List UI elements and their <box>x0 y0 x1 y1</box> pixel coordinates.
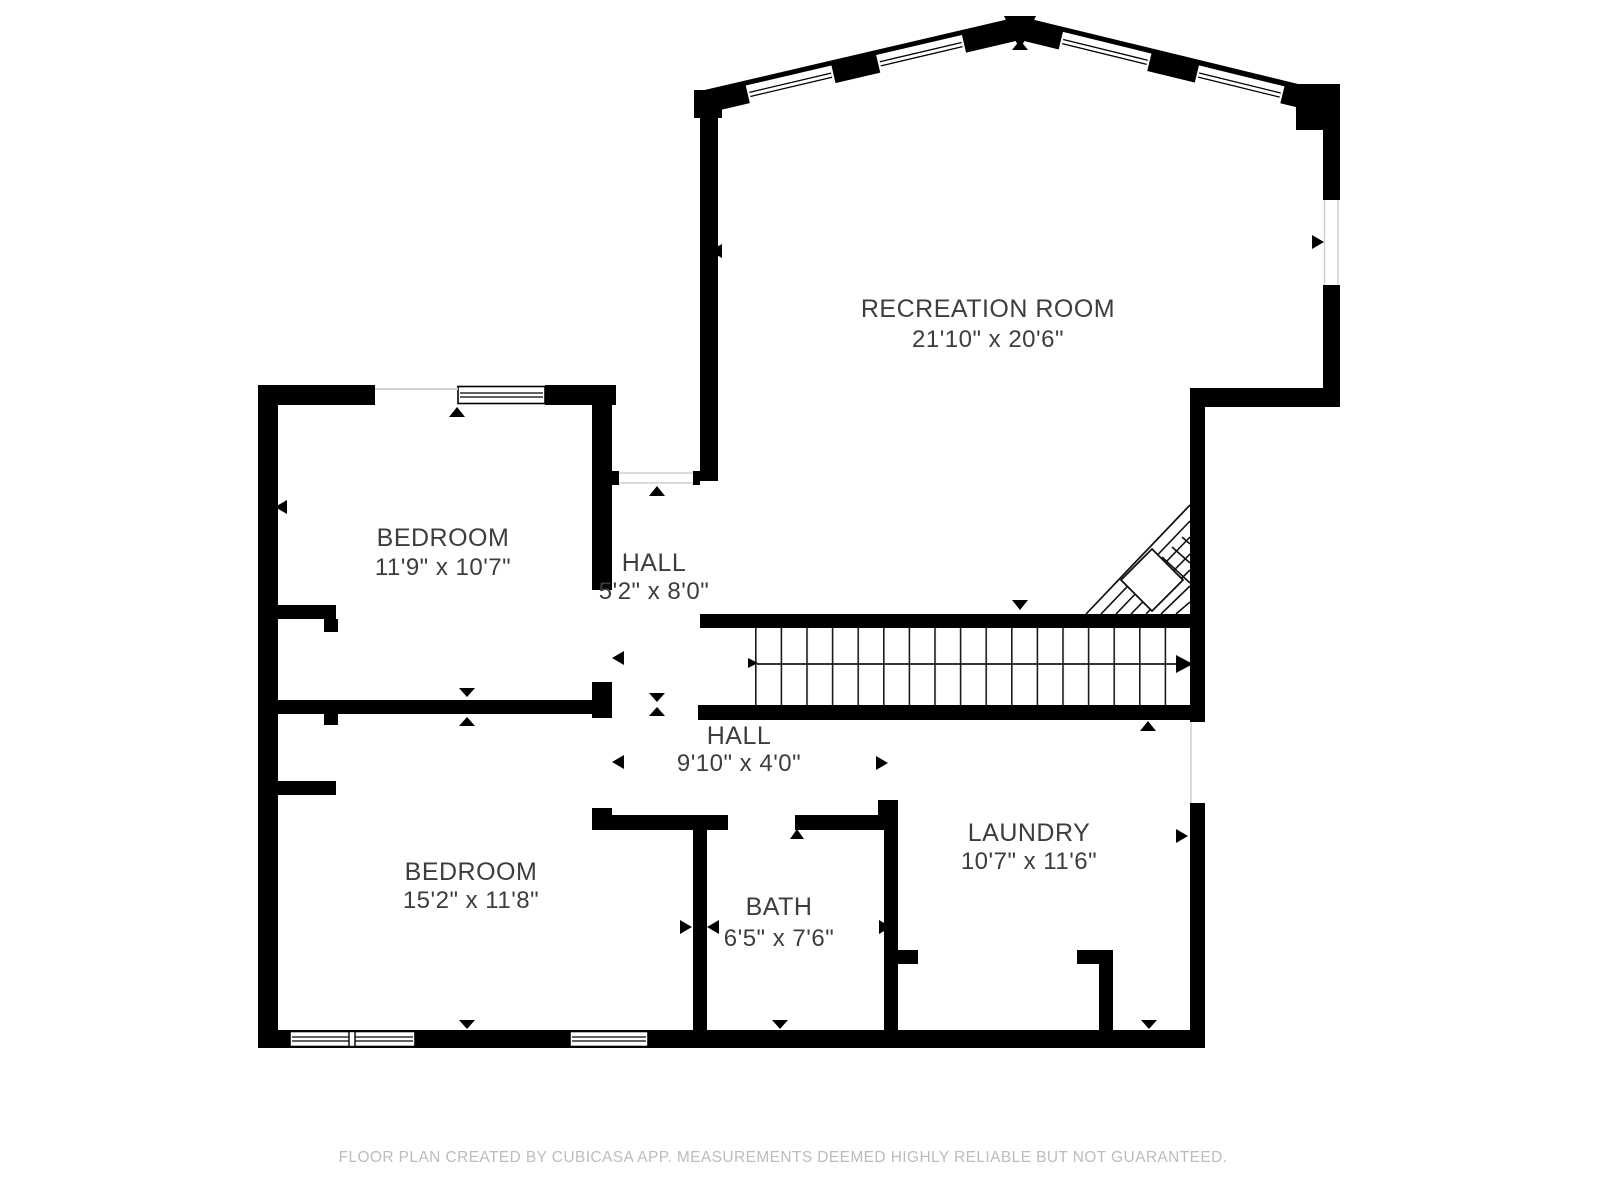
marker-bedroom1-door <box>612 651 624 665</box>
window-bedroom2-bottom-double <box>290 1032 415 1047</box>
room-dims-bath: 6'5" x 7'6" <box>724 925 834 952</box>
marker-laundry-top-wall <box>1140 721 1156 731</box>
room-dims-laundry: 10'7" x 11'6" <box>961 848 1097 875</box>
marker-bath-left-wall-a <box>680 920 692 934</box>
staircase <box>748 505 1193 705</box>
marker-bedroom1-window <box>449 407 465 417</box>
room-label-recreation: RECREATION ROOM <box>861 295 1115 323</box>
room-label-laundry: LAUNDRY <box>968 819 1091 847</box>
room-dims-hall-upper: 5'2" x 8'0" <box>599 578 709 605</box>
room-dims-hall-lower: 9'10" x 4'0" <box>677 750 801 777</box>
room-dims-bedroom-lower: 15'2" x 11'8" <box>403 887 539 914</box>
opening-hall-top <box>612 471 700 485</box>
marker-bedroom-divider-top <box>459 688 475 697</box>
window-bedroom1-top <box>458 387 545 404</box>
stair-treads <box>755 628 1190 705</box>
marker-hall-junction-bottom <box>649 707 665 716</box>
marker-bedroom2-bottom-wall <box>459 1020 475 1029</box>
marker-rec-stairs <box>1012 600 1028 610</box>
window-bedroom2-bottom-single <box>570 1032 648 1047</box>
marker-bath-door <box>790 829 804 839</box>
marker-laundry-right-door <box>1176 829 1188 843</box>
marker-rec-right-door <box>1312 235 1324 249</box>
room-dims-bedroom-upper: 11'9" x 10'7" <box>375 554 511 581</box>
floor-plan-page: RECREATION ROOM 21'10" x 20'6" BEDROOM 1… <box>0 0 1600 1200</box>
room-label-hall-upper: HALL <box>622 549 687 577</box>
marker-hall-junction-top <box>649 693 665 702</box>
marker-laundry-bottom-wall <box>1141 1020 1157 1029</box>
marker-bath-bottom-wall <box>772 1020 788 1029</box>
marker-hall-top-opening <box>649 486 665 496</box>
footer-disclaimer: FLOOR PLAN CREATED BY CUBICASA APP. MEAS… <box>339 1149 1228 1166</box>
marker-bedroom2-door <box>612 755 624 769</box>
marker-bath-left-wall-b <box>707 920 719 934</box>
room-label-hall-lower: HALL <box>707 722 772 750</box>
window-slope-right-1 <box>1061 41 1150 63</box>
floor-plan-svg: RECREATION ROOM 21'10" x 20'6" BEDROOM 1… <box>0 0 1600 1200</box>
marker-peak <box>1012 40 1028 50</box>
room-label-bedroom-lower: BEDROOM <box>405 858 538 886</box>
room-label-bath: BATH <box>746 893 813 921</box>
marker-bedroom-divider-bottom <box>459 717 475 726</box>
room-label-bedroom-upper: BEDROOM <box>377 524 510 552</box>
marker-laundry-door <box>876 756 888 770</box>
room-dims-recreation: 21'10" x 20'6" <box>912 326 1064 353</box>
